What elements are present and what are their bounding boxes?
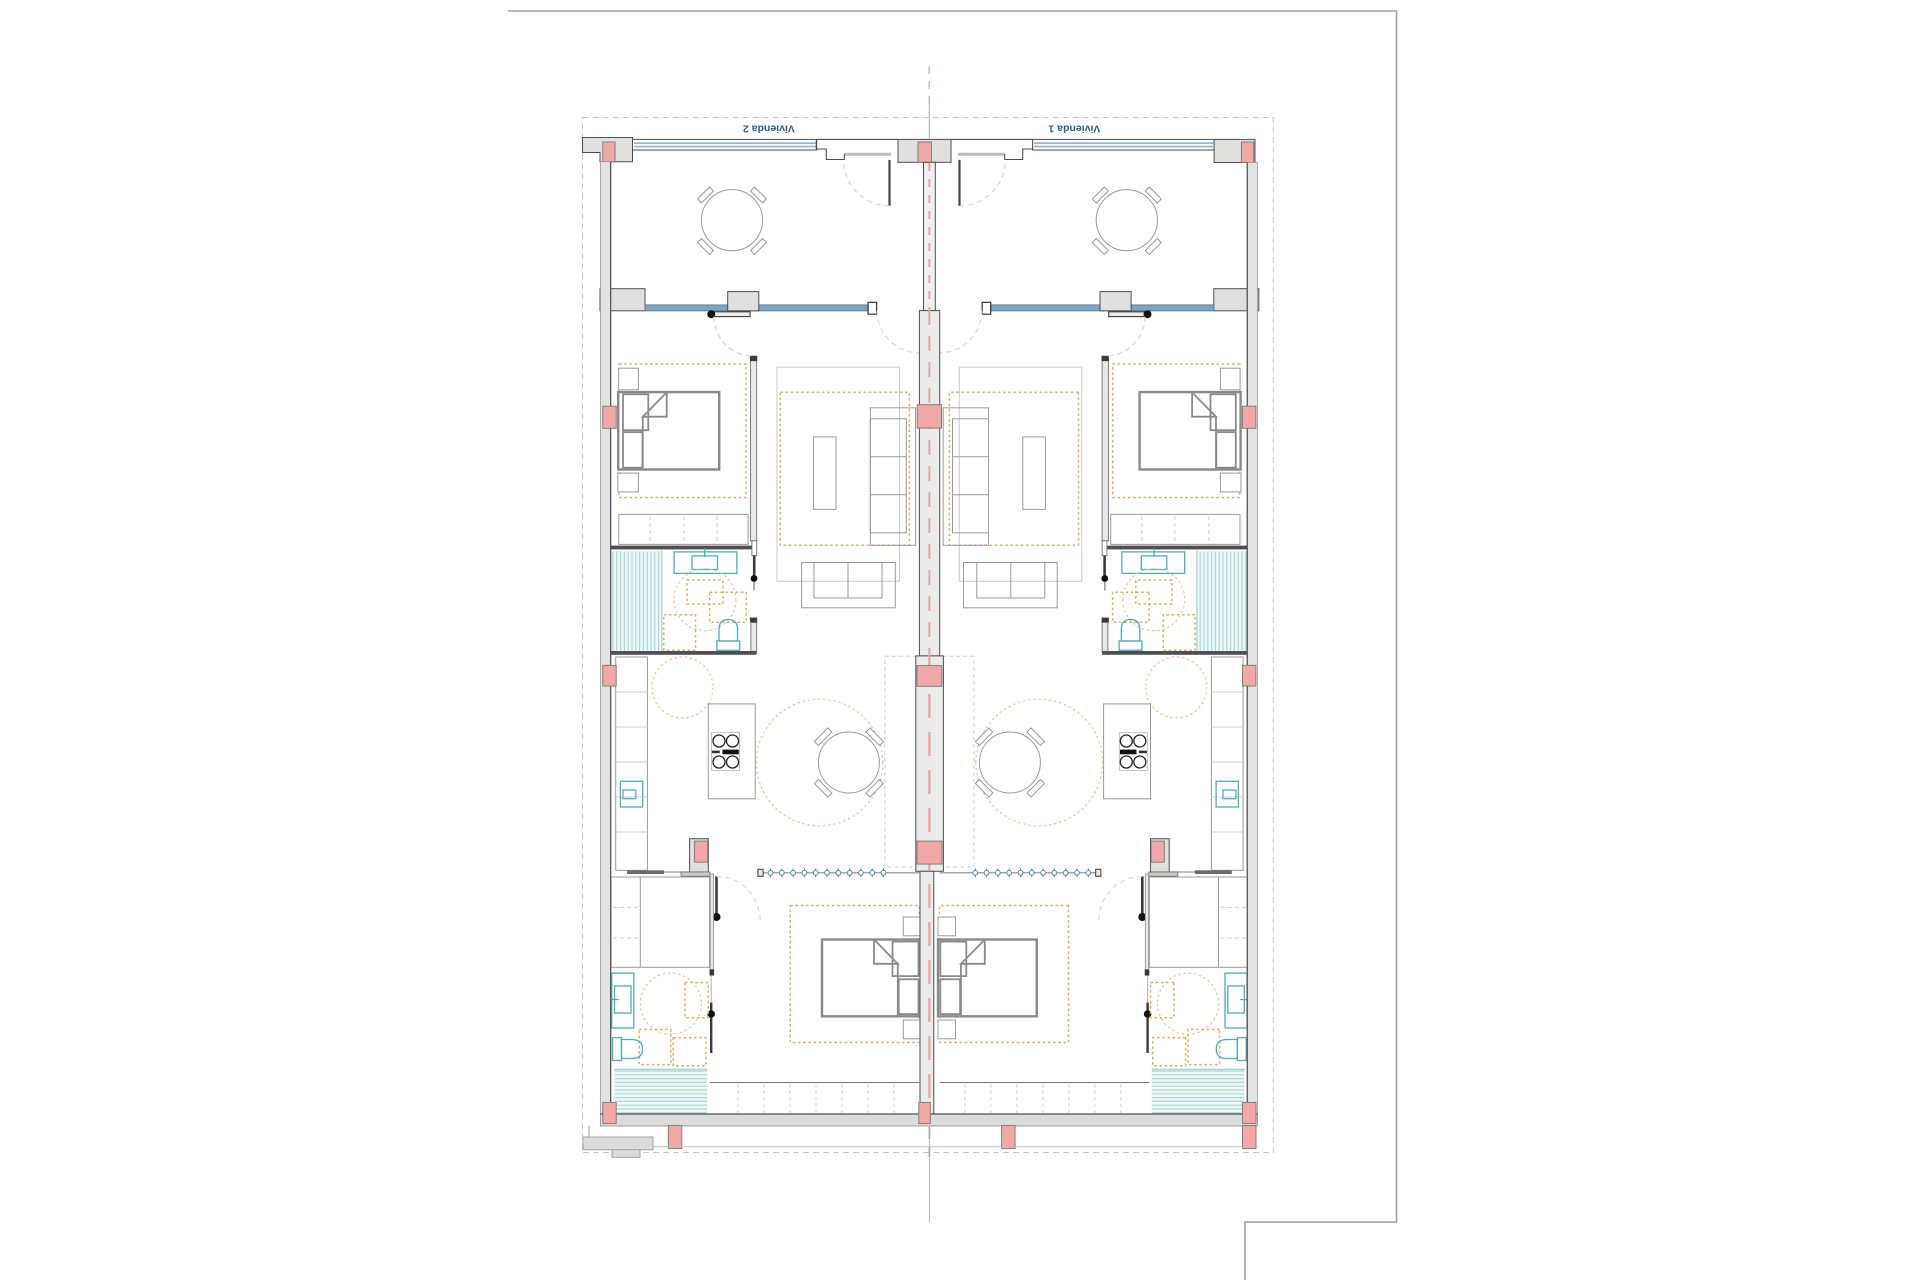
svg-text:Vivienda 1: Vivienda 1 xyxy=(1048,123,1100,135)
svg-text:Vivienda 2: Vivienda 2 xyxy=(743,123,795,135)
